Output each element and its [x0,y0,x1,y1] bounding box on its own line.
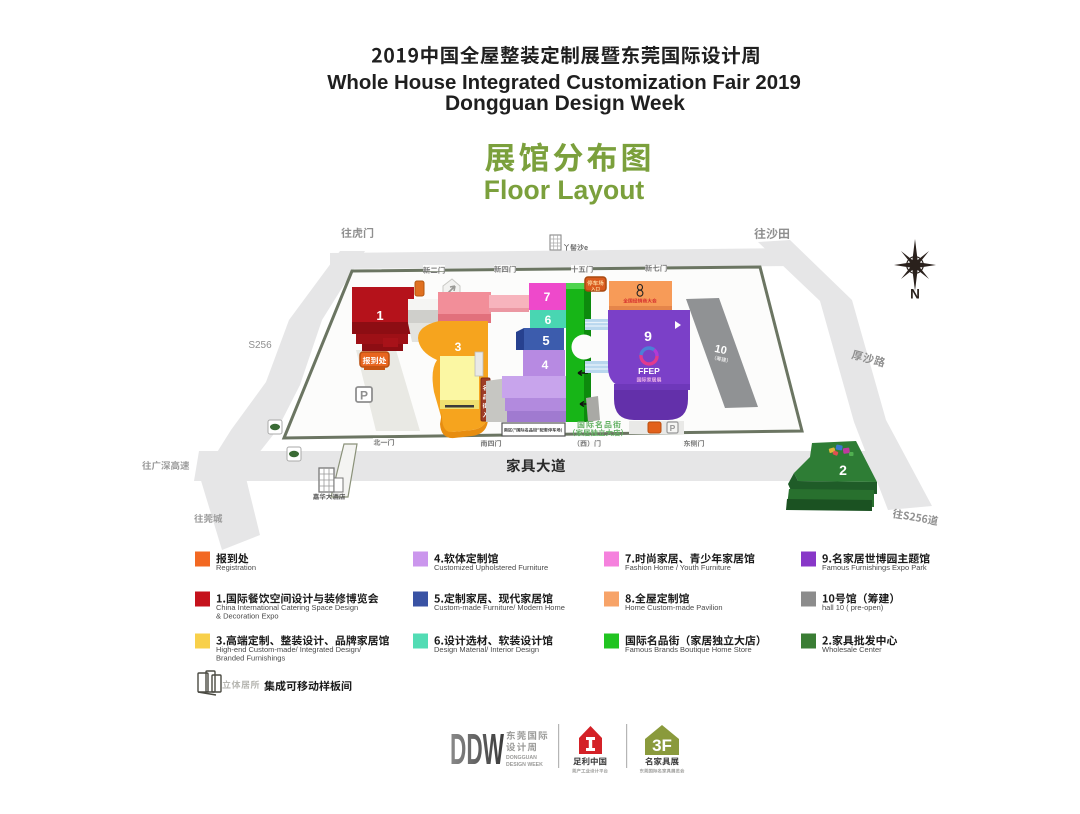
svg-text:DDW: DDW [450,725,504,774]
svg-text:7: 7 [544,290,551,304]
svg-text:N: N [910,287,920,302]
svg-text:Fashion Home / Youth Furniture: Fashion Home / Youth Furniture [625,563,731,572]
svg-text:& Decoration Expo: & Decoration Expo [216,611,279,620]
svg-text:2: 2 [839,462,847,478]
svg-text:Famous Brands Boutique Home St: Famous Brands Boutique Home Store [625,645,752,654]
svg-text:Home Custom-made Pavilion: Home Custom-made Pavilion [625,603,723,612]
svg-text:hall 10 ( pre-open): hall 10 ( pre-open) [822,603,884,612]
svg-text:DONGGUAN: DONGGUAN [506,755,537,761]
svg-text:3F: 3F [652,736,672,755]
svg-text:Branded Furnishings: Branded Furnishings [216,653,285,662]
svg-text:Registration: Registration [216,563,256,572]
svg-text:4: 4 [542,358,549,372]
svg-text:10: 10 [713,343,727,357]
svg-text:Design Material/ Interior Desi: Design Material/ Interior Design [434,645,539,654]
svg-text:Wholesale Center: Wholesale Center [822,645,882,654]
svg-text:S256: S256 [248,340,272,351]
svg-text:Dongguan Design Week: Dongguan Design Week [445,92,685,115]
svg-text:DESIGN WEEK: DESIGN WEEK [506,762,543,768]
svg-text:Whole House Integrated Customi: Whole House Integrated Customization Fai… [327,72,801,94]
svg-text:6: 6 [545,313,552,327]
svg-text:Floor Layout: Floor Layout [484,175,645,205]
svg-text:Customized Upholstered Furnitu: Customized Upholstered Furniture [434,563,548,572]
svg-text:1: 1 [376,308,383,323]
svg-text:9: 9 [644,328,652,344]
svg-text:Custom-made Furniture/ Modern: Custom-made Furniture/ Modern Home [434,603,565,612]
svg-text:P: P [360,389,368,403]
svg-text:5: 5 [542,333,549,348]
svg-text:Famous Furnishings Expo Park: Famous Furnishings Expo Park [822,563,927,572]
svg-text:P: P [670,423,676,433]
svg-text:3: 3 [455,340,462,354]
svg-text:FFEP: FFEP [638,366,660,376]
